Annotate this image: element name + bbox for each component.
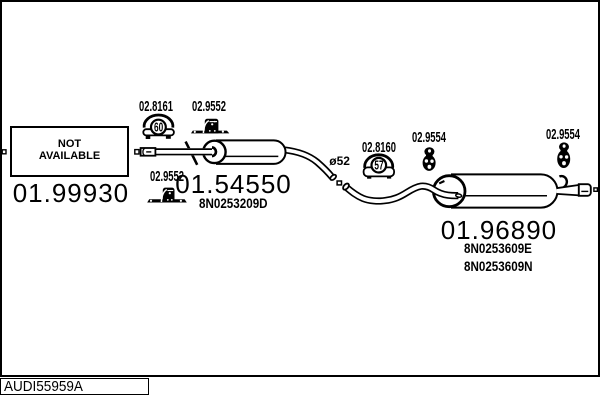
svg-text:60: 60 <box>154 121 163 135</box>
svg-text:57: 57 <box>374 159 383 173</box>
